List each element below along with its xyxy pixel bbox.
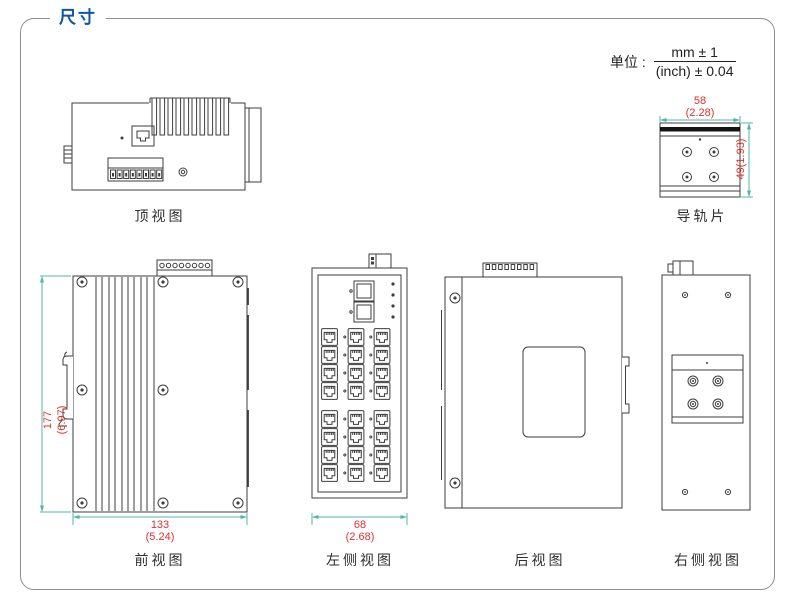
rail-height-dim: 49(1.93) [735, 124, 747, 194]
rail-plate-label: 导轨片 [677, 206, 728, 226]
right-side-view-drawing [662, 261, 750, 510]
left-side-view-drawing [312, 254, 407, 525]
rail-width-mm: 58 [670, 95, 730, 107]
page-title: 尺寸 [50, 7, 106, 29]
dimension-drawing [0, 0, 800, 599]
unit-inch-tolerance: (inch) ± 0.04 [654, 62, 736, 79]
reset-pinhole [121, 137, 124, 140]
power-connector-right-top [668, 261, 693, 275]
din-rail-clip-rear [622, 357, 629, 413]
unit-mm-tolerance: mm ± 1 [654, 44, 736, 62]
rail-width-inch: (2.28) [670, 107, 730, 119]
terminal-block-rear-top [483, 263, 537, 277]
top-view-label: 顶视图 [135, 206, 186, 226]
side-connector [64, 146, 72, 163]
unit-fraction: mm ± 1 (inch) ± 0.04 [654, 44, 736, 79]
unit-note: 单位 : mm ± 1 (inch) ± 0.04 [610, 44, 736, 79]
rear-screw-top [450, 293, 460, 303]
left-width-inch: (2.68) [320, 531, 400, 543]
top-view-drawing [64, 98, 261, 190]
rear-screw-bottom [450, 478, 460, 488]
front-view-label: 前视图 [135, 550, 186, 570]
left-side-view-label: 左侧视图 [326, 550, 394, 570]
din-bracket-top [245, 108, 261, 182]
dimension-sheet: 尺寸 单位 : mm ± 1 (inch) ± 0.04 顶视图 导轨片 前视图… [0, 0, 800, 599]
right-side-view-label: 右侧视图 [674, 550, 742, 570]
front-width-inch: (5.24) [120, 531, 200, 543]
left-width-mm: 68 [320, 519, 400, 531]
front-height-mm: 177 [42, 400, 54, 440]
front-view-drawing [40, 260, 248, 525]
rear-view-drawing [442, 263, 630, 508]
rear-view-label: 后视图 [515, 550, 566, 570]
unit-label: 单位 : [610, 52, 646, 72]
terminal-block-top [157, 260, 212, 276]
front-width-mm: 133 [120, 519, 200, 531]
power-connector-top [369, 254, 391, 268]
front-height-inch: (6.97) [56, 392, 68, 448]
